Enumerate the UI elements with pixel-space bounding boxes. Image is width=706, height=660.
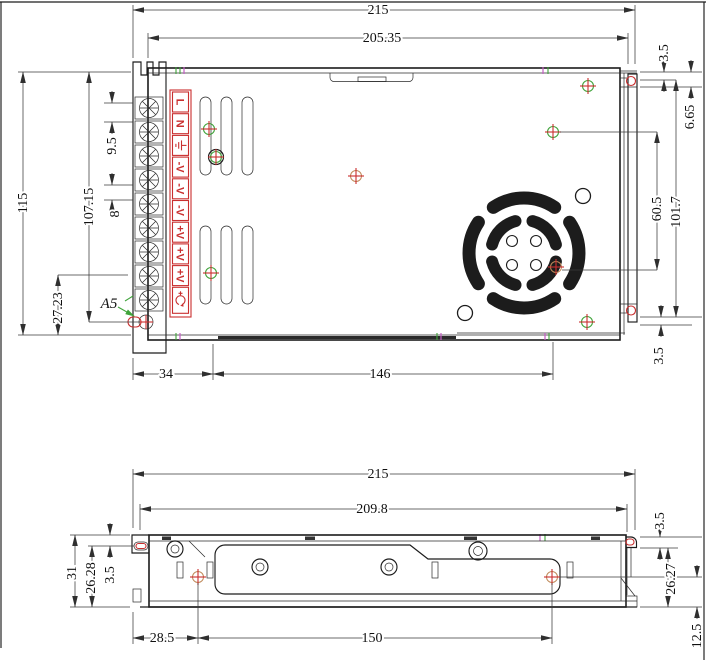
top-rail-tabs (162, 537, 600, 541)
dim-side-top-width: 209.8 (356, 502, 388, 517)
dim-side-right-3-5: 3.5 (653, 512, 668, 530)
drawing-canvas: LN-V-V-V+V+V+V A5 (0, 0, 706, 660)
terminal-cell-minusV: -V (173, 179, 189, 199)
terminal-label-strip: LN-V-V-V+V+V+V (170, 90, 191, 317)
dim-overall-width: 215 (368, 3, 389, 18)
fan-outer-ring (469, 198, 579, 308)
dim-bottom-146: 146 (370, 367, 391, 382)
terminal-label: -V (174, 205, 186, 217)
side-right-slot (626, 539, 634, 545)
terminal-screw (135, 145, 163, 167)
dim-side-right-26-27: 26.27 (664, 563, 679, 595)
dim-cover-width: 205.35 (363, 31, 402, 46)
dim-bottom-34: 34 (159, 367, 173, 382)
terminal-screw (135, 241, 163, 263)
terminal-cell-plusV: +V (173, 244, 189, 264)
position-target (201, 121, 217, 137)
dim-side-right-12-5: 12.5 (690, 624, 705, 649)
terminal-screw (135, 265, 163, 287)
top-edge-tab (358, 77, 386, 82)
side-view (132, 535, 637, 607)
side-view-dimensions: 215 209.8 31 26.28 3.5 3.5 26.27 12.5 28… (65, 467, 705, 648)
dim-bottom-offset: 27.23 (51, 292, 66, 324)
dim-right-6-65: 6.65 (683, 105, 698, 130)
side-slots (177, 562, 573, 578)
top-view-dimensions: 215 205.35 115 107.15 27.23 9.5 8 3.5 6.… (16, 3, 702, 382)
terminal-cell-N: N (173, 114, 189, 134)
dim-side-bottom-150: 150 (362, 631, 383, 646)
terminal-label: +V (174, 225, 186, 239)
earth-ground-icon (176, 140, 187, 150)
voltage-adjust-icon (176, 291, 185, 307)
side-screw (381, 559, 397, 575)
side-left-foot (133, 589, 141, 602)
dim-side-height-31: 31 (65, 566, 80, 580)
dim-right-60-5: 60.5 (650, 197, 665, 222)
side-screw (252, 559, 268, 575)
terminal-screw (135, 97, 163, 119)
dim-terminal-pitch-b: 8 (108, 211, 123, 218)
dim-side-left-3-5: 3.5 (103, 566, 118, 584)
dim-cover-height: 107.15 (82, 188, 97, 227)
side-position-targets (190, 569, 560, 585)
callout-leader-arrow (118, 307, 134, 316)
terminal-label: -V (174, 162, 186, 174)
terminal-block (135, 97, 163, 311)
sheet-frame (0, 2, 706, 660)
dim-right-bottom-3-5: 3.5 (652, 347, 667, 365)
right-flange (628, 74, 637, 322)
terminal-cell-minusV: -V (173, 157, 189, 177)
terminal-label: N (174, 120, 186, 128)
bottom-gasket-band (218, 336, 456, 339)
dim-side-bottom-28-5: 28.5 (150, 631, 175, 646)
earth-ground-icon (173, 135, 189, 155)
position-target (208, 149, 224, 165)
dim-terminal-pitch-a: 9.5 (105, 137, 120, 155)
terminal-screw (135, 193, 163, 215)
terminal-cell-plusV: +V (173, 266, 189, 286)
terminal-cell-plusV: +V (173, 222, 189, 242)
position-target (348, 168, 364, 184)
position-target (580, 78, 596, 94)
hole-callout-label: A5 (100, 296, 118, 312)
dim-overall-height: 115 (16, 193, 31, 213)
fan-screw-hole (458, 306, 473, 321)
terminal-label: +V (174, 247, 186, 261)
terminal-label: -V (174, 183, 186, 195)
dim-right-3-5: 3.5 (657, 44, 672, 62)
terminal-screw (135, 121, 163, 143)
fan-center-holes (507, 236, 542, 271)
position-target (190, 569, 206, 585)
terminal-cell-L: L (173, 92, 189, 112)
position-target (579, 314, 595, 330)
fan-inner-ring (492, 221, 556, 285)
dim-side-overall-width: 215 (368, 467, 389, 482)
fan-grille (458, 189, 591, 321)
fan-screw-hole (576, 189, 591, 204)
dim-side-height-26-28: 26.28 (84, 562, 99, 594)
terminal-label: +V (174, 269, 186, 283)
position-target (545, 124, 561, 140)
terminal-screw (135, 169, 163, 191)
terminal-screw (135, 289, 163, 311)
terminal-cell-minusV: -V (173, 201, 189, 221)
side-screw (167, 541, 183, 557)
terminal-screw (135, 217, 163, 239)
voltage-adjust-icon (173, 287, 189, 313)
terminal-label: L (174, 99, 186, 106)
psu-dimension-drawing: LN-V-V-V+V+V+V A5 (0, 0, 706, 660)
dim-right-101-7: 101.7 (669, 196, 684, 228)
position-target (544, 569, 560, 585)
side-right-foot (626, 596, 637, 607)
position-target (203, 265, 219, 281)
side-screw (469, 542, 487, 560)
recessed-panel (215, 545, 560, 594)
